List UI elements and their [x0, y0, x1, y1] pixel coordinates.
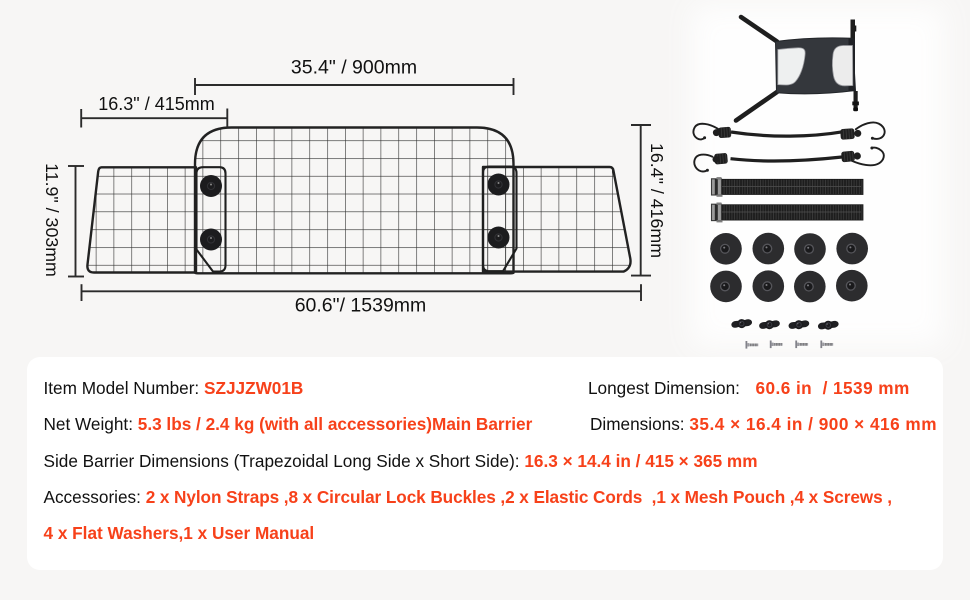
svg-text:16.4" / 416mm: 16.4" / 416mm	[647, 143, 667, 258]
svg-text:60.6"/ 1539mm: 60.6"/ 1539mm	[295, 295, 427, 317]
svg-text:35.4" / 900mm: 35.4" / 900mm	[291, 56, 417, 78]
svg-text:16.3" / 415mm: 16.3" / 415mm	[98, 94, 214, 114]
svg-text:11.9" / 303mm: 11.9" / 303mm	[42, 163, 62, 277]
